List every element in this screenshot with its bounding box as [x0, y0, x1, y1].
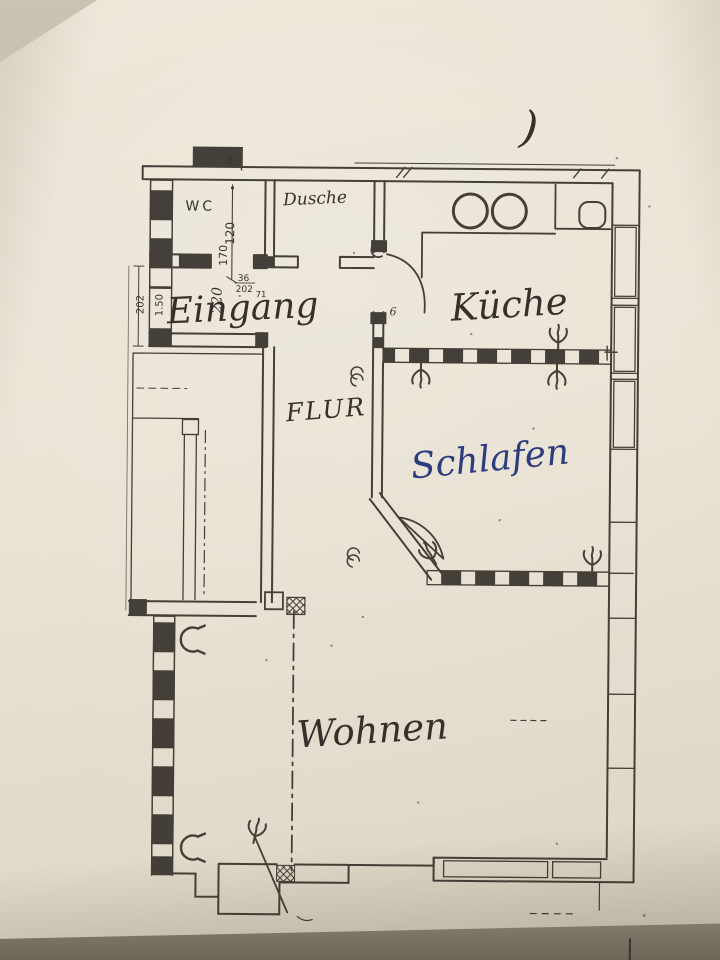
radiator-icon: [550, 325, 567, 350]
room-label-dusche: Dusche: [282, 188, 348, 211]
kitchen-bedroom-divider-hatched: [383, 348, 611, 364]
dimension-202b: 202: [135, 295, 146, 314]
left-property-line: [126, 266, 129, 610]
stairwell-inner-wall: [183, 434, 196, 599]
living-left-wall-hatch: [152, 616, 175, 858]
dimension-202a: 202: [236, 285, 253, 295]
dimension-end-dot: [231, 186, 234, 189]
pen-mark: [347, 548, 359, 567]
plan-linework: [123, 146, 652, 960]
dusche-bottom-wall: [274, 256, 374, 268]
wc-door-jamb-left: [179, 254, 211, 267]
annotation-6: 6: [389, 305, 396, 318]
kitchen-door-arc: [386, 254, 425, 312]
dimension-36: 36: [238, 274, 250, 284]
window-right-3: [613, 381, 635, 447]
wc-exterior-wall-hatch: [150, 180, 173, 288]
hob-rings-icon: [453, 194, 487, 228]
stairwell-dash-dot-line: [204, 431, 205, 599]
entry-wall-block: [149, 333, 164, 346]
dimension-220: 220: [209, 287, 225, 315]
room-label-flur: FLUR: [284, 392, 368, 427]
kitchen-wall-block: [373, 337, 383, 348]
chimney-icon: [129, 599, 147, 616]
pen-mark: [297, 916, 312, 920]
shaft-icon: [287, 597, 305, 614]
kitchen-door-jamb-bottom: [370, 312, 386, 324]
radiator-c-icon: [181, 625, 205, 653]
wc-dusche-divider-wall: [265, 180, 275, 255]
floorplan-drawing: WC Dusche Eingang Küche FLUR Schlafen Wo…: [0, 0, 720, 960]
room-label-kueche: Küche: [448, 280, 569, 330]
dimension-120: 120: [223, 222, 237, 245]
top-dimension-line: [355, 163, 615, 165]
dimension-150: 1.50: [154, 294, 165, 316]
hob-rings-icon: [492, 194, 526, 228]
room-label-wc: WC: [185, 198, 215, 214]
bedroom-bottom-wall-hatched: [427, 571, 609, 587]
radiator-c-icon: [181, 833, 205, 861]
radiator-icon: [412, 362, 429, 387]
dusche-wall-block: [265, 256, 275, 268]
window-bottom-2: [553, 862, 601, 878]
room-label-wohnen: Wohnen: [296, 704, 450, 756]
dimension-2: 2: [228, 157, 234, 167]
kitchen-counter: [422, 233, 555, 279]
stairwell-newel-square: [182, 419, 198, 434]
sink-icon: [579, 202, 605, 228]
window-right-2: [614, 307, 636, 371]
dimension-71: 71: [256, 290, 267, 300]
shaft-square: [265, 592, 283, 609]
radiator-icon: [584, 547, 601, 572]
radiator-icon: [548, 364, 565, 389]
top-wall: [143, 166, 640, 183]
pen-mark: [351, 367, 363, 386]
pen-paren-mark: ): [517, 102, 541, 155]
bottom-bay-outline: [172, 855, 433, 915]
photo-of-floorplan: WC Dusche Eingang Küche FLUR Schlafen Wo…: [0, 0, 720, 960]
window-right-1: [615, 227, 637, 296]
room-label-schlafen: Schlafen: [409, 431, 571, 487]
chimney-icon: [193, 147, 243, 167]
hallway-left-wall: [261, 347, 274, 602]
living-dash-dot-line: [292, 611, 294, 870]
kitchen-niche: [555, 185, 610, 229]
window-bottom-1: [444, 861, 548, 878]
bedroom-door-arc: [398, 517, 443, 558]
dimension-170: 170: [217, 245, 230, 266]
bedroom-diagonal-wall: [369, 493, 442, 580]
entry-wall-block: [255, 332, 268, 347]
living-left-wall-block: [152, 856, 173, 875]
living-top-wall: [129, 601, 256, 616]
right-wall: [606, 170, 639, 882]
